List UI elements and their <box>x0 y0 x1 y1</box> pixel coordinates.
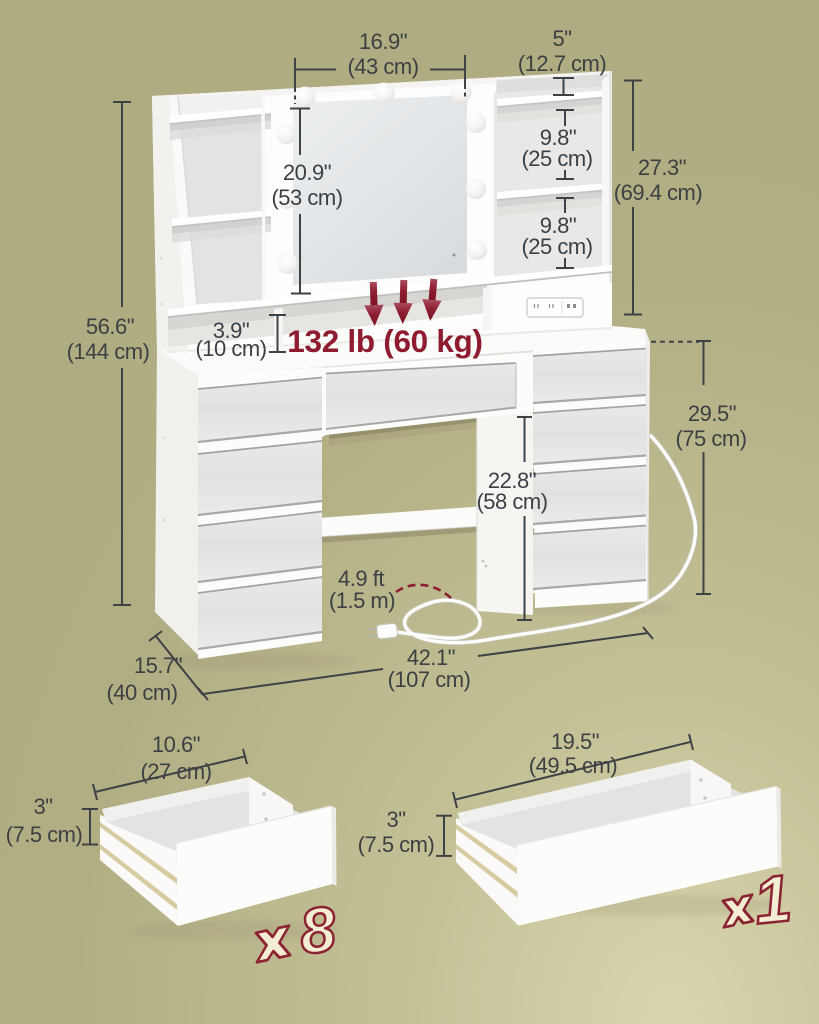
svg-text:27.3": 27.3" <box>638 155 686 180</box>
svg-text:(12.7 cm): (12.7 cm) <box>518 51 606 76</box>
svg-text:(25 cm): (25 cm) <box>521 234 592 259</box>
svg-text:(40 cm): (40 cm) <box>106 680 177 705</box>
svg-text:3": 3" <box>33 794 52 819</box>
svg-text:(75 cm): (75 cm) <box>675 426 746 451</box>
svg-text:(43 cm): (43 cm) <box>347 54 418 79</box>
svg-text:(25 cm): (25 cm) <box>521 146 592 171</box>
svg-text:5": 5" <box>552 26 571 51</box>
svg-text:132 lb (60 kg): 132 lb (60 kg) <box>287 323 482 359</box>
svg-text:19.5": 19.5" <box>551 729 599 754</box>
svg-text:(58 cm): (58 cm) <box>476 489 547 514</box>
svg-text:(1.5 m): (1.5 m) <box>329 588 395 613</box>
svg-text:3": 3" <box>386 807 405 832</box>
svg-text:15.7": 15.7" <box>134 653 182 678</box>
svg-text:16.9": 16.9" <box>359 29 407 54</box>
svg-text:56.6": 56.6" <box>86 314 134 339</box>
svg-text:(10 cm): (10 cm) <box>195 336 266 361</box>
svg-text:20.9": 20.9" <box>283 160 331 185</box>
svg-text:(27 cm): (27 cm) <box>140 759 211 784</box>
svg-text:29.5": 29.5" <box>688 401 736 426</box>
svg-text:(69.4 cm): (69.4 cm) <box>614 180 702 205</box>
svg-text:(144 cm): (144 cm) <box>67 339 150 364</box>
svg-text:(53 cm): (53 cm) <box>271 185 342 210</box>
svg-text:10.6": 10.6" <box>152 732 200 757</box>
svg-text:1: 1 <box>750 860 794 937</box>
svg-text:(107 cm): (107 cm) <box>388 667 471 692</box>
svg-text:(7.5 cm): (7.5 cm) <box>358 832 435 857</box>
svg-text:(49.5 cm): (49.5 cm) <box>529 753 617 778</box>
svg-text:(7.5 cm): (7.5 cm) <box>6 822 83 847</box>
